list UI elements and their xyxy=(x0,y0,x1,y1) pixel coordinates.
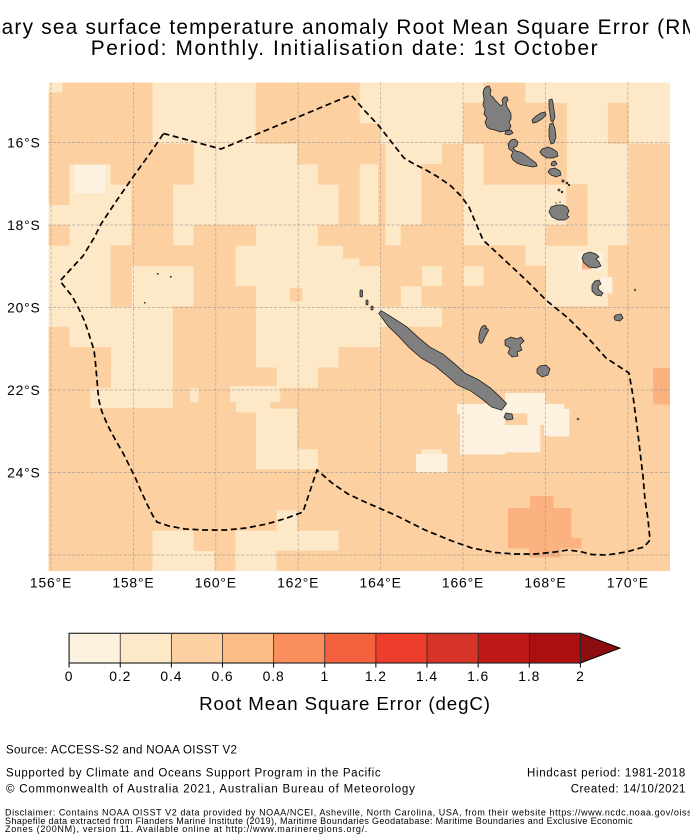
svg-text:Supported by Climate and Ocean: Supported by Climate and Oceans Support … xyxy=(6,768,381,780)
svg-text:162°E: 162°E xyxy=(277,575,319,591)
svg-text:160°E: 160°E xyxy=(195,575,237,591)
svg-text:20°S: 20°S xyxy=(7,299,40,315)
svg-text:2: 2 xyxy=(576,668,585,684)
svg-text:Hindcast period: 1981-2018: Hindcast period: 1981-2018 xyxy=(527,768,686,780)
svg-text:Root Mean Square Error (degC): Root Mean Square Error (degC) xyxy=(199,693,491,714)
svg-text:Source: ACCESS-S2 and NOAA OIS: Source: ACCESS-S2 and NOAA OISST V2 xyxy=(6,745,237,757)
svg-text:Zones (200NM), version 11. Ava: Zones (200NM), version 11. Available onl… xyxy=(5,824,368,834)
svg-text:168°E: 168°E xyxy=(524,575,566,591)
svg-text:1.2: 1.2 xyxy=(365,668,387,684)
svg-text:1.8: 1.8 xyxy=(518,668,540,684)
svg-text:0.4: 0.4 xyxy=(160,668,182,684)
svg-text:1: 1 xyxy=(320,668,329,684)
svg-text:166°E: 166°E xyxy=(442,575,484,591)
svg-text:164°E: 164°E xyxy=(360,575,402,591)
svg-text:0.2: 0.2 xyxy=(109,668,131,684)
svg-text:1.4: 1.4 xyxy=(416,668,438,684)
svg-text:January sea surface temperatur: January sea surface temperature anomaly … xyxy=(0,16,690,39)
svg-text:0: 0 xyxy=(65,668,74,684)
svg-text:Created: 14/10/2021: Created: 14/10/2021 xyxy=(571,784,686,796)
svg-text:24°S: 24°S xyxy=(7,464,40,480)
svg-text:© Commonwealth of Australia 20: © Commonwealth of Australia 2021, Austra… xyxy=(6,784,416,796)
svg-text:0.8: 0.8 xyxy=(263,668,285,684)
svg-text:0.6: 0.6 xyxy=(211,668,233,684)
svg-text:18°S: 18°S xyxy=(7,217,40,233)
svg-text:1.6: 1.6 xyxy=(467,668,489,684)
svg-text:158°E: 158°E xyxy=(112,575,154,591)
svg-text:156°E: 156°E xyxy=(30,575,72,591)
svg-text:Period: Monthly. Initialisatio: Period: Monthly. Initialisation date: 1s… xyxy=(91,37,600,60)
svg-text:16°S: 16°S xyxy=(7,134,40,150)
svg-text:170°E: 170°E xyxy=(607,575,649,591)
svg-text:22°S: 22°S xyxy=(7,382,40,398)
